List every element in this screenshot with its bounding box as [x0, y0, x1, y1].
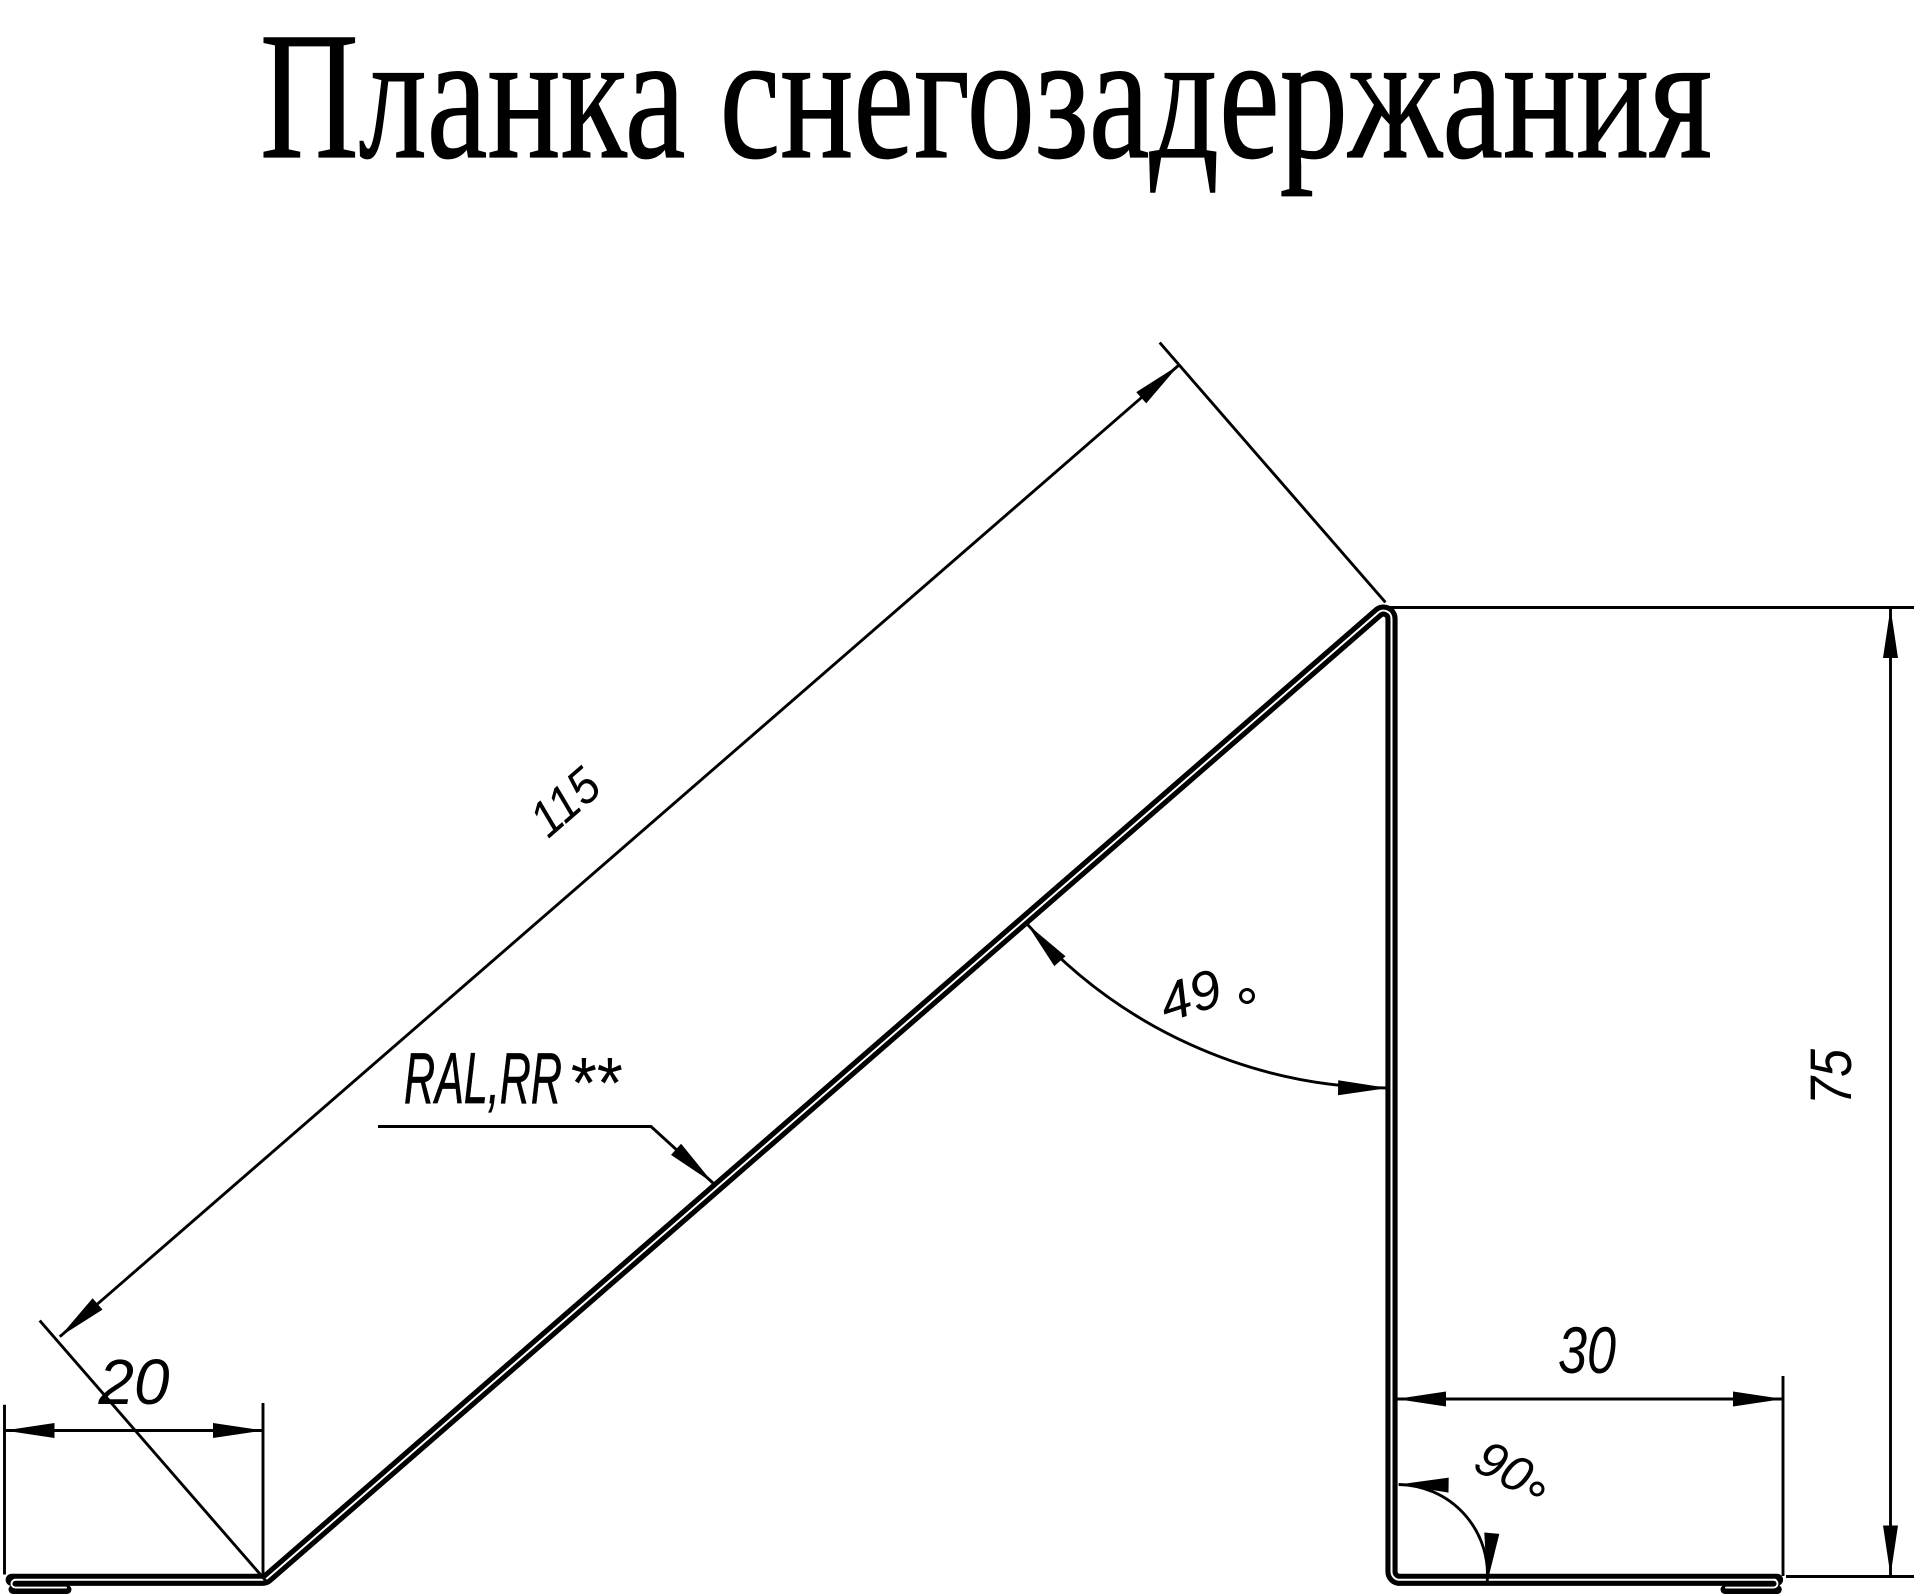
svg-text:30: 30: [1558, 1313, 1616, 1387]
svg-text:90: 90: [1466, 1429, 1542, 1505]
svg-text:20: 20: [98, 1346, 170, 1418]
svg-text:RAL,RR: RAL,RR: [404, 1039, 562, 1119]
svg-text:49: 49: [1152, 958, 1230, 1034]
svg-text:Планка снегозадержания: Планка снегозадержания: [260, 0, 1712, 197]
svg-text:75: 75: [1799, 1048, 1864, 1105]
svg-text:115: 115: [519, 757, 612, 848]
svg-text:**: **: [568, 1044, 622, 1124]
